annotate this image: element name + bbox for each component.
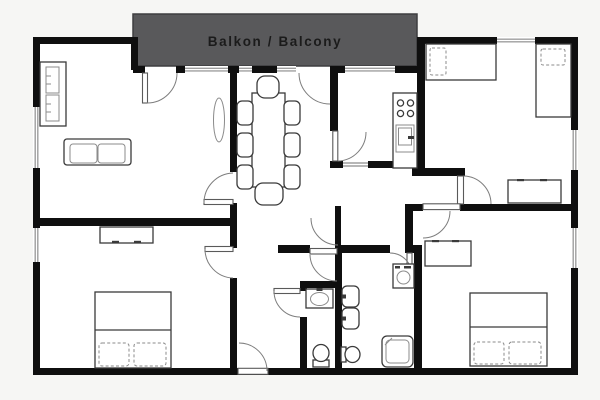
door-leaf xyxy=(238,368,268,374)
toilet xyxy=(313,345,329,368)
balcony: Balkon / Balcony xyxy=(133,14,417,66)
dining-chair xyxy=(237,133,253,157)
single-bed xyxy=(536,44,571,117)
wall-segment xyxy=(230,66,237,172)
dining-chair xyxy=(284,101,300,125)
window xyxy=(33,228,40,262)
dining-chair xyxy=(237,101,253,125)
double-bed xyxy=(470,293,547,366)
dresser xyxy=(100,227,153,243)
balcony-label: Balkon / Balcony xyxy=(208,34,342,49)
window xyxy=(277,66,296,73)
wall-segment xyxy=(419,168,465,176)
window xyxy=(571,228,578,268)
dining-chair xyxy=(284,165,300,189)
wall-segment xyxy=(33,218,237,226)
wall-segment xyxy=(252,66,277,73)
wall-segment xyxy=(460,204,578,211)
wall-segment xyxy=(417,37,497,44)
shower xyxy=(382,336,413,367)
wall-segment xyxy=(33,37,138,44)
wall-segment xyxy=(300,317,307,368)
wall-segment xyxy=(414,245,422,368)
kitchen-pass-through xyxy=(343,161,368,168)
wall-segment xyxy=(335,206,341,245)
kitchen-furniture xyxy=(393,93,417,168)
single-bed xyxy=(426,44,496,80)
wall-segment xyxy=(133,66,145,73)
wall-segment xyxy=(395,66,417,73)
door-leaf xyxy=(204,200,233,205)
sofa xyxy=(64,139,131,165)
wall-segment xyxy=(417,37,425,170)
wall-segment xyxy=(176,66,185,73)
window xyxy=(33,107,40,168)
floor-plan: Balkon / Balcony xyxy=(0,0,600,400)
washing-machine xyxy=(393,264,414,288)
wall-segment xyxy=(230,278,237,368)
toilet xyxy=(341,347,360,363)
window xyxy=(497,37,535,44)
dining-chair xyxy=(284,133,300,157)
wall-segment xyxy=(405,204,413,253)
door-leaf xyxy=(274,289,300,294)
wall-segment xyxy=(300,281,342,288)
dresser xyxy=(508,179,561,203)
door-leaf xyxy=(333,131,338,161)
double-bed xyxy=(95,292,171,368)
washbasin xyxy=(306,288,333,308)
dining-chair xyxy=(237,165,253,189)
dining-chair xyxy=(257,76,279,98)
door-leaf xyxy=(310,249,337,255)
window xyxy=(345,66,395,73)
dining-table xyxy=(252,93,285,187)
sink xyxy=(342,308,360,329)
sink xyxy=(342,286,360,307)
dining-chair xyxy=(255,183,283,205)
door-leaf xyxy=(458,176,464,204)
wall-segment xyxy=(330,70,338,131)
dresser xyxy=(425,240,471,266)
wall-segment xyxy=(337,245,390,253)
door-leaf xyxy=(143,73,148,103)
window xyxy=(239,66,252,73)
window xyxy=(185,66,228,73)
wall-segment xyxy=(33,368,578,375)
wall-segment xyxy=(33,37,40,375)
wall-segment xyxy=(278,245,310,253)
wardrobe xyxy=(40,62,66,126)
wall-segment xyxy=(412,245,422,253)
window xyxy=(571,130,578,170)
door-leaf xyxy=(205,247,233,252)
door-leaf xyxy=(423,204,460,210)
